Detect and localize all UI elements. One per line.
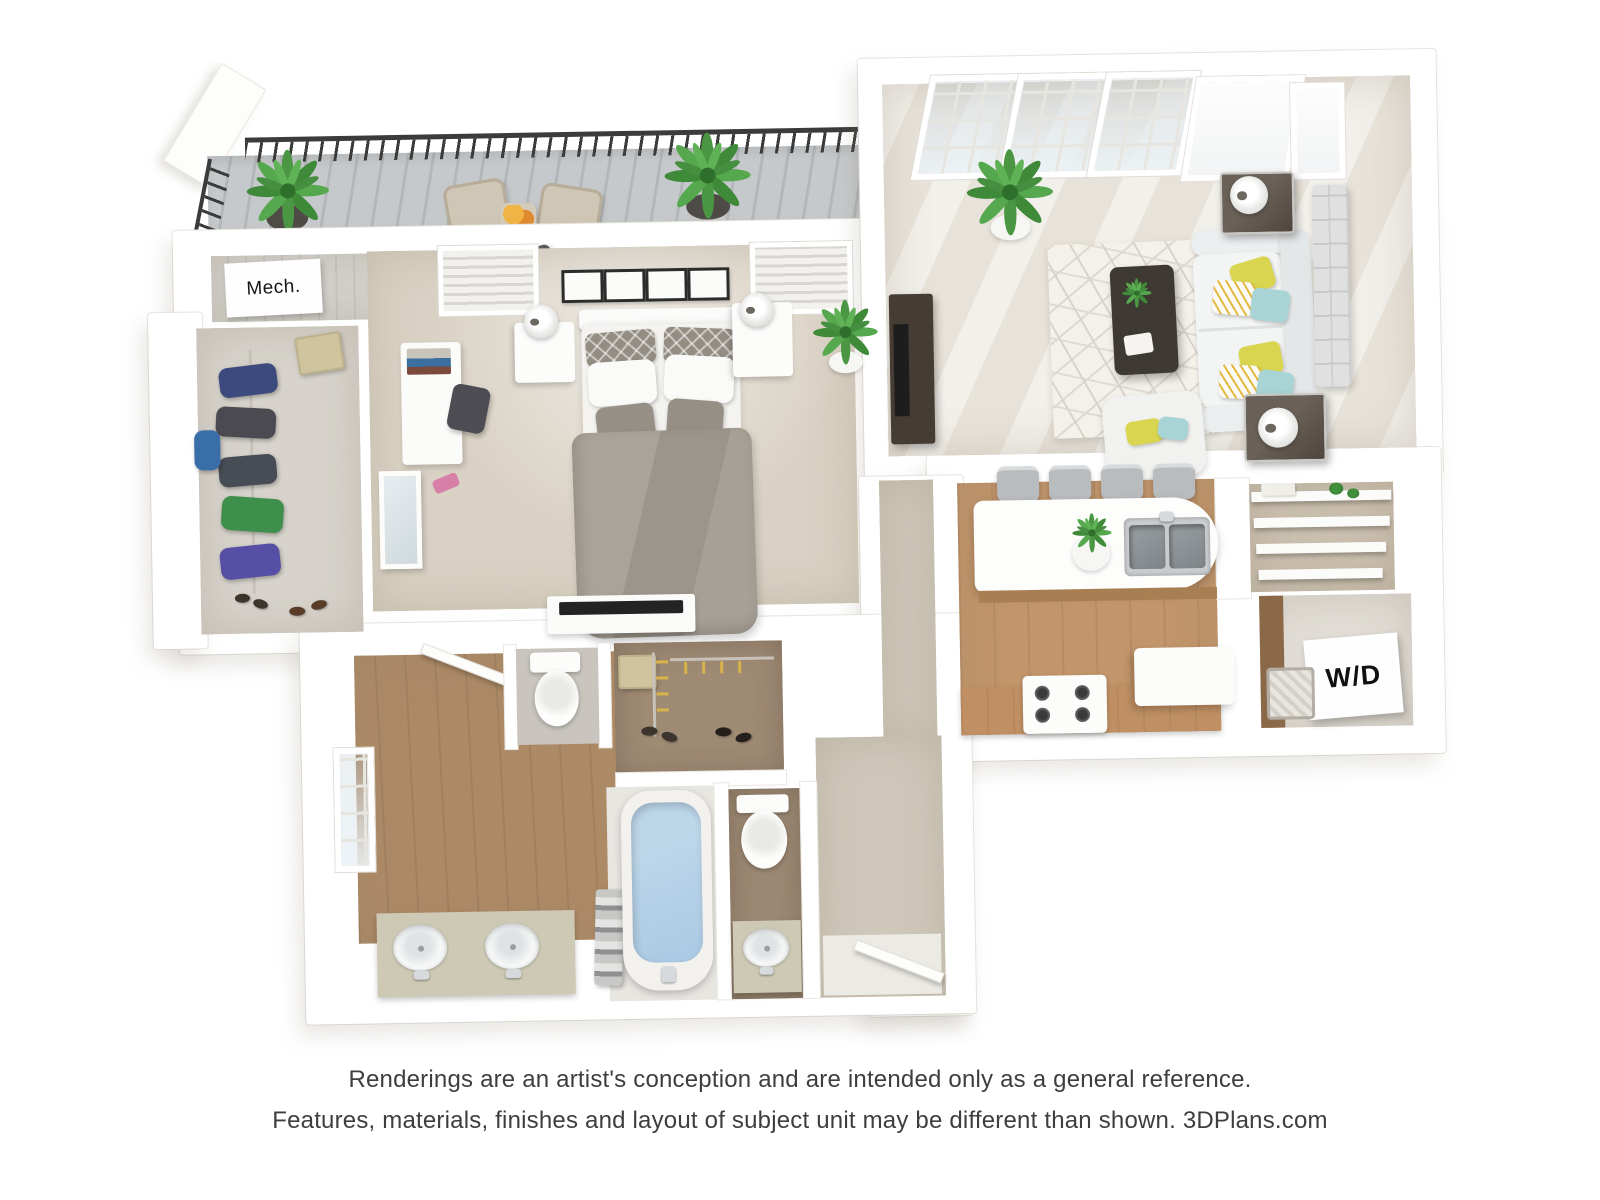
bathtub-interior xyxy=(631,802,704,963)
pillow xyxy=(663,354,735,404)
storage-box xyxy=(618,655,657,690)
bathtub xyxy=(620,790,713,992)
hanging-clothes xyxy=(215,406,276,439)
hallway-floor xyxy=(879,480,938,743)
wall-art-frame xyxy=(603,269,646,303)
hanger-hooks xyxy=(720,661,723,673)
apartment-plan: Mech. xyxy=(0,0,1600,1200)
bedroom-plant-icon xyxy=(812,299,879,366)
pantry-item xyxy=(1261,483,1295,496)
book-stack xyxy=(407,348,451,375)
kitchen-pantry-wall xyxy=(1215,478,1251,599)
wall-art-frame xyxy=(561,269,604,303)
closet2-bottom-wall xyxy=(616,770,786,787)
washer-dryer-label-card: W/D xyxy=(1303,632,1404,720)
kitchen-faucet xyxy=(1160,511,1174,521)
living-plant-icon xyxy=(965,148,1055,238)
wall-art-panel xyxy=(1312,184,1352,387)
hanger-hooks xyxy=(657,692,669,695)
hanger-hooks xyxy=(656,676,668,679)
bar-stool xyxy=(1153,463,1196,500)
bar-stool xyxy=(1049,465,1092,502)
hanging-clothes xyxy=(220,495,284,533)
storage-box xyxy=(294,331,345,376)
stove xyxy=(1022,675,1107,734)
balcony-plant-icon xyxy=(245,148,330,233)
bed xyxy=(579,307,747,636)
storage-bag xyxy=(194,430,221,470)
mech-room-label: Mech. xyxy=(246,276,301,301)
mech-room-label-card: Mech. xyxy=(224,259,323,318)
toilet-niche-wall xyxy=(598,643,612,747)
bath-window xyxy=(334,747,376,872)
sink-faucet xyxy=(413,971,429,980)
bar-stool xyxy=(997,466,1040,503)
wall-art-frame xyxy=(645,268,688,302)
pillow xyxy=(587,359,658,408)
refrigerator xyxy=(1134,646,1235,706)
right-wall-window xyxy=(1290,82,1346,179)
sink-faucet xyxy=(505,969,521,978)
armchair-pillow-teal xyxy=(1157,416,1189,441)
laundry-basket xyxy=(1266,667,1315,720)
bedroom-tv xyxy=(559,600,683,615)
bar-stool xyxy=(1101,464,1144,501)
disclaimer-text: Renderings are an artist's conception an… xyxy=(0,1066,1600,1148)
coffee-table-plant-icon xyxy=(1121,278,1152,309)
bedroom-window xyxy=(438,245,539,317)
washer-dryer-label: W/D xyxy=(1324,659,1382,695)
bar-vase-plant-icon xyxy=(1072,513,1113,554)
hanger-hooks xyxy=(656,660,668,663)
sink-faucet xyxy=(759,967,773,975)
tub-faucet xyxy=(661,966,675,982)
hanger-hooks xyxy=(738,661,741,673)
balcony-plant-icon xyxy=(663,131,753,221)
disclaimer-line-1: Renderings are an artist's conception an… xyxy=(0,1066,1600,1094)
hanger-hooks xyxy=(684,662,687,674)
hanger-hooks xyxy=(657,708,669,711)
patio-door-window xyxy=(1181,75,1306,181)
kitchen-sink xyxy=(1124,517,1211,576)
hanging-clothes xyxy=(218,453,278,488)
towel-stack xyxy=(594,889,624,985)
sofa-pillow-teal xyxy=(1249,287,1291,323)
living-tv xyxy=(893,324,910,416)
leaning-mirror xyxy=(379,471,423,570)
floor-plan-rendering: Mech. xyxy=(0,0,1600,1200)
wall-art-frame xyxy=(687,267,730,301)
hanging-clothes xyxy=(219,543,282,581)
hanger-hooks xyxy=(702,662,705,674)
disclaimer-line-2: Features, materials, finishes and layout… xyxy=(0,1107,1600,1135)
